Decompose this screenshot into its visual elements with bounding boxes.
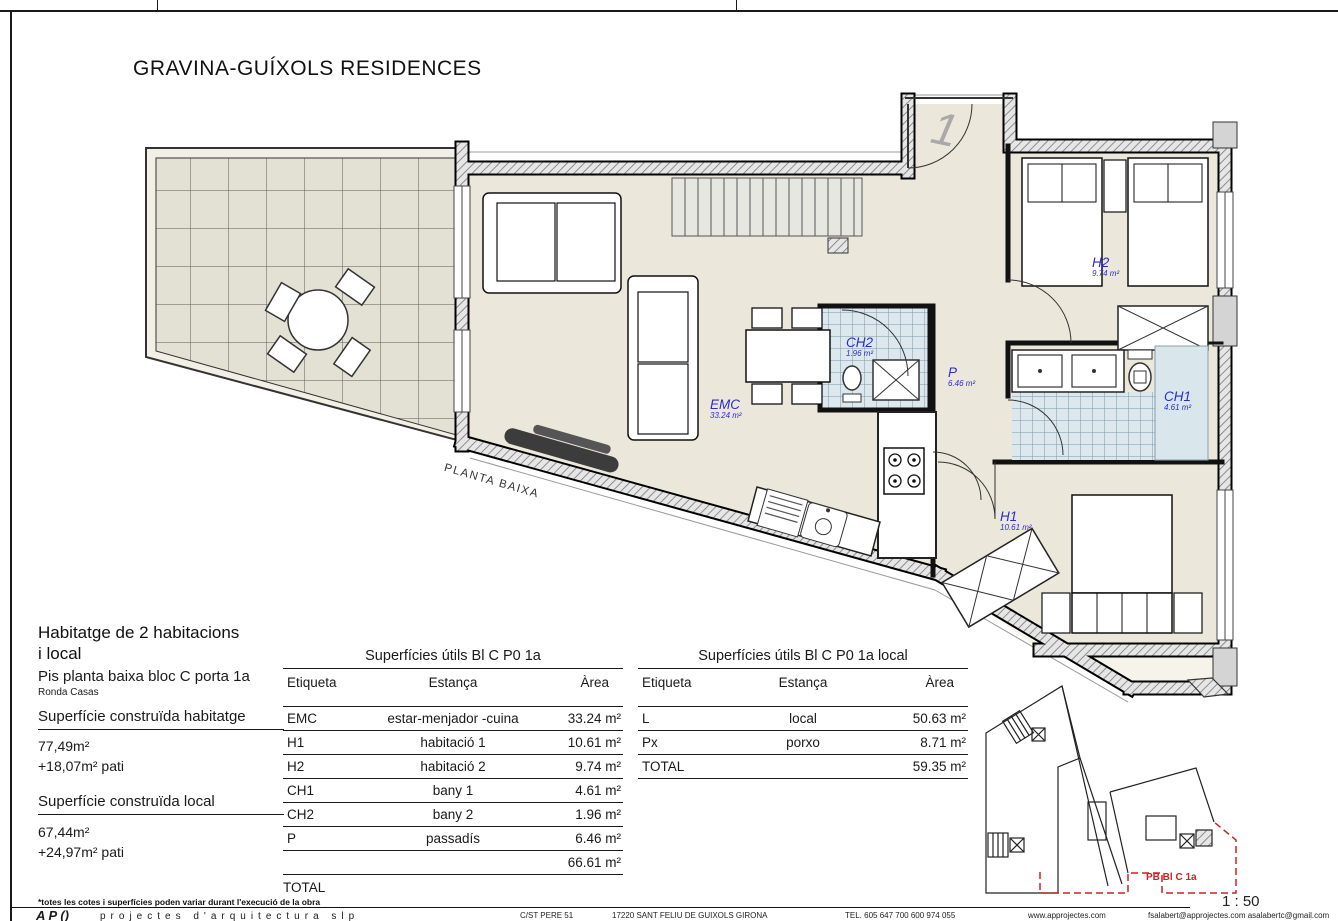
firm-address: C/ST PERE 51 xyxy=(520,911,573,920)
dwelling-subheading: Pis planta baixa bloc C porta 1a xyxy=(38,668,250,685)
room-label-p: P 6.46 m² xyxy=(948,366,975,389)
built-dwelling-label: Superfície construïda habitatge xyxy=(38,708,246,725)
table-row: H1 habitació 1 10.61 m² xyxy=(283,731,623,755)
table-dwelling-areas: Superfícies útils Bl C P0 1a Etiqueta Es… xyxy=(283,648,623,895)
table-subtotal-row: 66.61 m² xyxy=(283,851,623,875)
room-label-emc: EMC 33.24 m² xyxy=(710,398,742,421)
table-header: Etiqueta Estança Àrea xyxy=(283,669,623,707)
room-label-h2: H2 9.74 m² xyxy=(1092,256,1119,279)
shutter-box xyxy=(1213,648,1237,686)
divider xyxy=(38,814,284,815)
floor-plan-drawing xyxy=(0,0,1338,921)
room-label-ch1: CH1 4.61 m² xyxy=(1164,390,1191,413)
terrace xyxy=(146,148,468,443)
street-label: Ronda Casas xyxy=(38,687,99,698)
footer-divider xyxy=(10,907,1190,908)
shutter-box xyxy=(1213,122,1237,148)
table-total-label: TOTAL xyxy=(283,875,623,895)
sofa-side xyxy=(628,276,698,440)
firm-email: fsalabert@approjectes.com asalabertc@gma… xyxy=(1148,911,1329,920)
built-local-label: Superfície construïda local xyxy=(38,793,215,810)
firm-phone: TEL. 605 647 700 600 974 055 xyxy=(845,911,955,920)
site-unit-label: PB Bl C 1a xyxy=(1146,872,1197,883)
room-label-h1: H1 10.61 m² xyxy=(1000,510,1032,533)
table-row: P passadís 6.46 m² xyxy=(283,827,623,851)
shutter-box xyxy=(1213,296,1237,346)
table-title: Superfícies útils Bl C P0 1a xyxy=(283,648,623,669)
firm-city: 17220 SANT FELIU DE GUIXOLS GIRONA xyxy=(612,911,767,920)
table-header: Etiqueta Estança Àrea xyxy=(638,669,968,707)
firm-name: projectes d'arquitectura slp xyxy=(100,911,359,921)
room-label-ch2: CH2 1.96 m² xyxy=(846,336,873,359)
table-row: CH2 bany 2 1.96 m² xyxy=(283,803,623,827)
disclaimer-note: *totes les cotes i superfícies poden var… xyxy=(38,897,320,907)
wardrobe-h2 xyxy=(1118,306,1208,350)
dwelling-heading: Habitatge de 2 habitacions i local xyxy=(38,622,298,665)
built-local-values: 67,44m² +24,97m² pati xyxy=(38,822,124,863)
bathroom-ch2 xyxy=(820,306,930,410)
firm-logo: A P () xyxy=(36,908,69,921)
scale-label: 1 : 50 xyxy=(1222,893,1260,910)
table-title: Superfícies útils Bl C P0 1a local xyxy=(638,648,968,669)
table-row: CH1 bany 1 4.61 m² xyxy=(283,779,623,803)
table-total-row: TOTAL 59.35 m² xyxy=(638,755,968,779)
built-dwelling-values: 77,49m² +18,07m² pati xyxy=(38,736,124,777)
sofa-top xyxy=(483,193,621,293)
drawing-sheet: { "title": "GRAVINA-GUÍXOLS RESIDENCES",… xyxy=(0,0,1338,921)
site-plan-inset xyxy=(986,678,1236,893)
table-row: L local 50.63 m² xyxy=(638,707,968,731)
page-title: GRAVINA-GUÍXOLS RESIDENCES xyxy=(133,57,482,81)
divider xyxy=(38,729,284,730)
table-row: Px porxo 8.71 m² xyxy=(638,731,968,755)
table-row: EMC estar-menjador -cuina 33.24 m² xyxy=(283,707,623,731)
table-row: H2 habitació 2 9.74 m² xyxy=(283,755,623,779)
table-local-areas: Superfícies útils Bl C P0 1a local Etiqu… xyxy=(638,648,968,779)
firm-web: www.approjectes.com xyxy=(1028,911,1106,920)
